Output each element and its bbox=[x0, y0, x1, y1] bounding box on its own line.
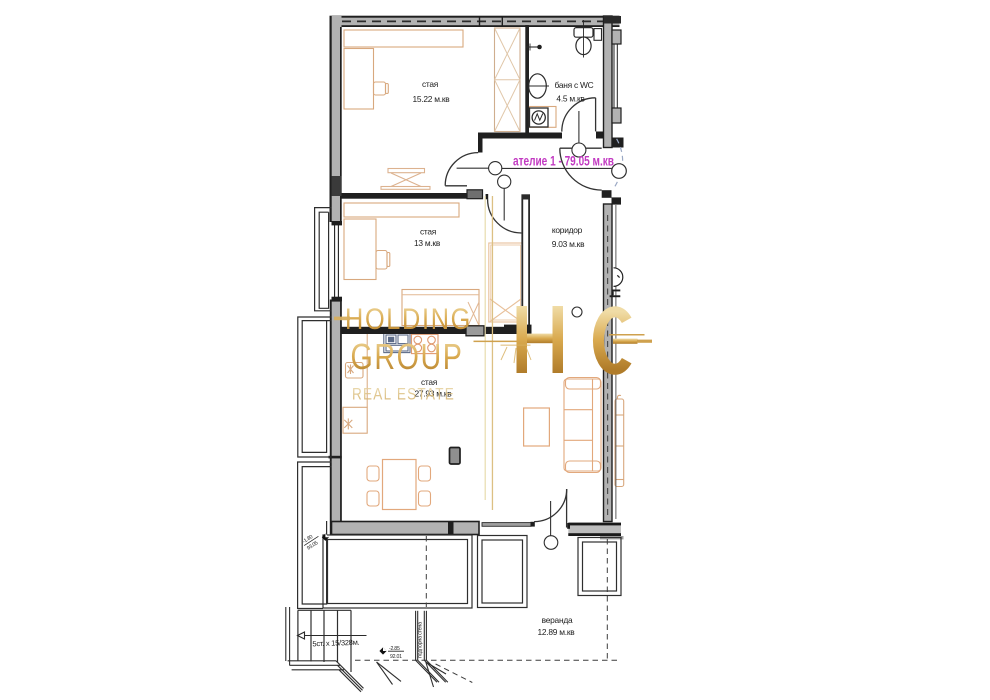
svg-text:веранда: веранда bbox=[542, 615, 573, 625]
svg-text:ателие 1 - 79.05 м.кв: ателие 1 - 79.05 м.кв bbox=[513, 153, 614, 169]
svg-text:5ст. x 15/328м.: 5ст. x 15/328м. bbox=[312, 638, 359, 649]
svg-text:стая: стая bbox=[420, 227, 436, 237]
svg-text:-2.85: -2.85 bbox=[389, 646, 400, 652]
svg-text:REAL ESTATE: REAL ESTATE bbox=[352, 386, 455, 404]
svg-text:12.89 м.кв: 12.89 м.кв bbox=[538, 627, 576, 637]
svg-text:стая: стая bbox=[422, 79, 438, 89]
svg-text:HOLDING: HOLDING bbox=[345, 303, 472, 336]
svg-text:13 м.кв: 13 м.кв bbox=[414, 238, 441, 248]
svg-text:коридор: коридор bbox=[552, 225, 583, 235]
svg-text:подпорна стена: подпорна стена bbox=[418, 622, 424, 658]
svg-text:баня с WC: баня с WC bbox=[555, 80, 594, 90]
svg-text:15.22 м.кв: 15.22 м.кв bbox=[413, 94, 451, 104]
svg-text:GROUP: GROUP bbox=[351, 336, 464, 377]
svg-text:9.03 м.кв: 9.03 м.кв bbox=[552, 239, 585, 249]
svg-text:92.01: 92.01 bbox=[390, 654, 402, 660]
svg-text:4.5 м.кв: 4.5 м.кв bbox=[556, 94, 585, 104]
